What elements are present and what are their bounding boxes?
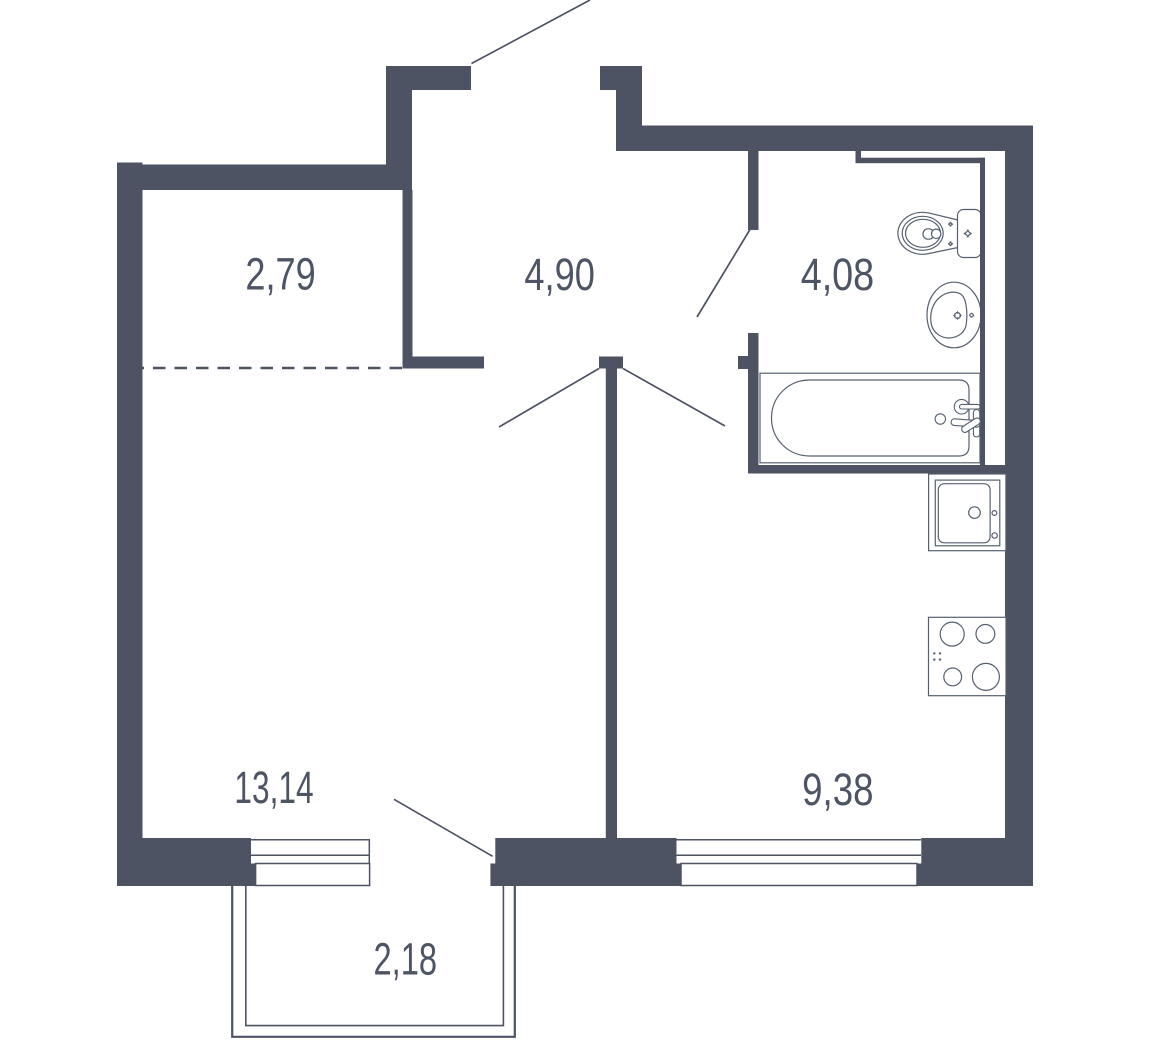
svg-text:4,90: 4,90 (524, 249, 595, 300)
svg-text:2,18: 2,18 (374, 933, 438, 984)
svg-text:9,38: 9,38 (802, 764, 873, 815)
svg-text:2,79: 2,79 (245, 249, 315, 300)
svg-text:13,14: 13,14 (234, 762, 313, 813)
svg-text:4,08: 4,08 (801, 249, 875, 300)
